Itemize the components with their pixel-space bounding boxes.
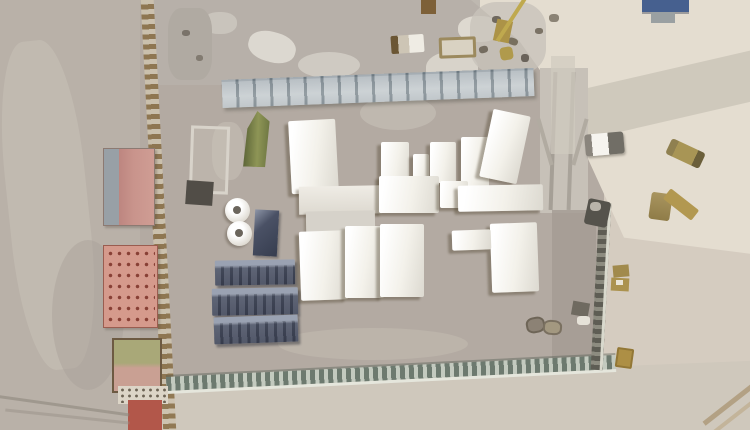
blue-container-1 bbox=[215, 259, 295, 285]
water-tank-1-cap bbox=[233, 206, 241, 214]
red-building-south bbox=[103, 245, 158, 328]
compound-light-patch bbox=[278, 328, 468, 360]
white-box bbox=[452, 229, 492, 250]
rubble-patch-7 bbox=[168, 8, 212, 80]
water-tank-2-cap bbox=[235, 229, 243, 237]
truck-top-2 bbox=[439, 36, 477, 58]
gold-box bbox=[615, 347, 635, 369]
debris-speck-8 bbox=[196, 55, 203, 61]
brown-container-top bbox=[421, 0, 436, 14]
hall-east bbox=[458, 184, 543, 211]
blue-panel-topright bbox=[642, 0, 689, 12]
hall-center bbox=[379, 176, 439, 213]
debris-speck-6 bbox=[549, 14, 559, 22]
dark-vehicle-top bbox=[590, 202, 601, 211]
equipment-dark bbox=[571, 301, 590, 318]
tent-h bbox=[345, 226, 384, 298]
green-roof-building bbox=[112, 338, 162, 393]
dark-slab bbox=[185, 180, 214, 206]
equipment-light bbox=[577, 316, 590, 325]
navy-container-vertical bbox=[253, 209, 279, 256]
crane-part bbox=[499, 46, 514, 61]
tent-i bbox=[380, 224, 424, 297]
white-truck bbox=[584, 131, 625, 156]
compound-vehicle-2 bbox=[542, 319, 562, 336]
tan-box-speck bbox=[616, 280, 623, 285]
gray-box-topright bbox=[651, 12, 675, 23]
red-annex bbox=[128, 400, 162, 430]
blue-container-2 bbox=[212, 287, 298, 315]
inner-right-gray-strip bbox=[552, 210, 596, 368]
tent-j bbox=[490, 222, 539, 293]
satellite-image bbox=[0, 0, 750, 430]
truck-top-1 bbox=[390, 34, 424, 54]
tower-structure bbox=[551, 56, 575, 154]
debris-speck-4 bbox=[535, 28, 543, 34]
tent-a bbox=[288, 119, 339, 194]
tent-g bbox=[299, 230, 348, 301]
blue-container-3 bbox=[214, 315, 299, 345]
debris-speck-3 bbox=[521, 54, 529, 62]
debris-speck-7 bbox=[182, 30, 190, 36]
tan-box-1 bbox=[613, 264, 630, 277]
red-building-north bbox=[103, 148, 155, 226]
